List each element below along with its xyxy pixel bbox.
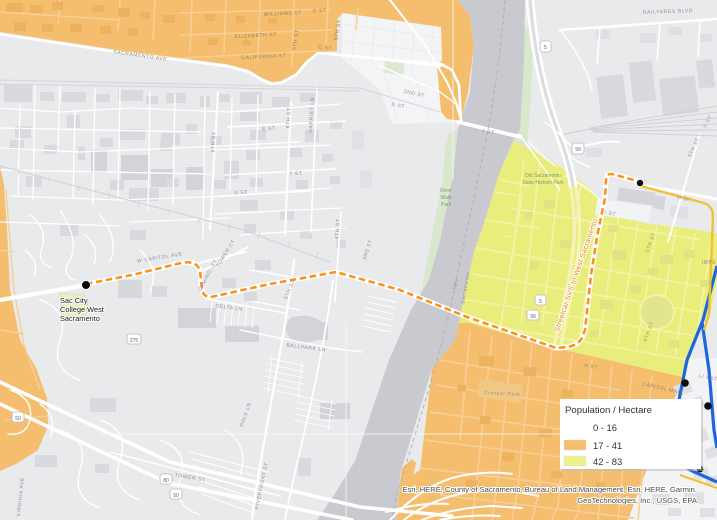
svg-text:7 ST: 7 ST	[289, 171, 302, 178]
svg-text:Old Sacramento: Old Sacramento	[525, 173, 561, 179]
svg-text:4TH ST: 4TH ST	[334, 218, 341, 239]
svg-text:IMPE: IMPE	[702, 260, 717, 266]
svg-text:17 - 41: 17 - 41	[593, 440, 622, 451]
svg-text:E ST: E ST	[262, 126, 276, 133]
svg-text:E ST: E ST	[313, 8, 327, 15]
svg-text:Walk: Walk	[441, 195, 452, 201]
svg-text:99: 99	[530, 314, 536, 320]
svg-text:99: 99	[575, 147, 581, 153]
svg-text:5: 5	[539, 299, 542, 305]
svg-text:G ST: G ST	[234, 190, 248, 197]
svg-text:C ST: C ST	[318, 44, 332, 51]
svg-text:5: 5	[544, 45, 547, 51]
svg-text:0 - 16: 0 - 16	[593, 422, 617, 433]
svg-text:Park: Park	[441, 202, 452, 208]
svg-text:50: 50	[15, 416, 21, 422]
svg-text:50: 50	[173, 493, 179, 499]
svg-text:275: 275	[130, 338, 139, 344]
svg-text:Sacramento: Sacramento	[60, 314, 100, 323]
svg-text:College West: College West	[60, 305, 104, 314]
svg-text:80: 80	[163, 478, 169, 484]
svg-text:River: River	[440, 188, 452, 194]
svg-text:Sac City: Sac City	[60, 296, 88, 305]
svg-text:State Historic Park: State Historic Park	[522, 180, 564, 186]
svg-text:Population / Hectare: Population / Hectare	[565, 405, 652, 416]
svg-text:42 - 83: 42 - 83	[593, 456, 622, 467]
svg-text:Esri, HERE, County of Sacramen: Esri, HERE, County of Sacramento, Bureau…	[402, 485, 697, 494]
svg-text:GeoTechnologies, Inc., USGS, E: GeoTechnologies, Inc., USGS, EPA	[577, 496, 698, 505]
